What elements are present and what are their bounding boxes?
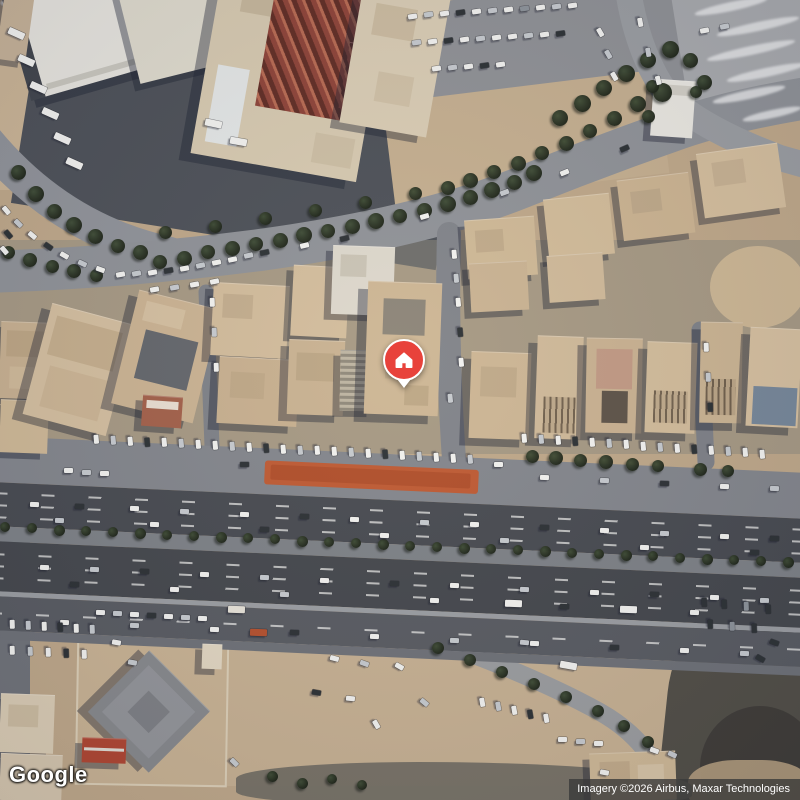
- car: [128, 437, 133, 446]
- roof-detail: [230, 372, 265, 400]
- building: [202, 644, 223, 670]
- roof-detail: [711, 159, 746, 187]
- map-canvas[interactable]: Google Imagery ©2026 Airbus, Maxar Techn…: [0, 0, 800, 800]
- car: [434, 453, 439, 462]
- building: [696, 143, 786, 219]
- car: [10, 620, 15, 629]
- car: [720, 484, 729, 489]
- building: [287, 339, 346, 416]
- tree: [559, 136, 574, 151]
- building: [210, 282, 290, 359]
- car: [180, 509, 189, 514]
- car: [212, 328, 217, 337]
- car: [451, 454, 456, 463]
- tree: [46, 260, 59, 273]
- car: [702, 598, 707, 607]
- tree: [81, 526, 91, 536]
- roof-detail: [296, 352, 335, 381]
- tree: [783, 557, 794, 568]
- truck: [505, 600, 522, 607]
- tree: [351, 538, 361, 548]
- google-logo[interactable]: Google: [9, 762, 88, 788]
- car: [240, 512, 249, 517]
- car: [260, 575, 269, 580]
- car: [766, 605, 771, 614]
- roof-detail: [480, 366, 517, 397]
- car: [90, 625, 95, 634]
- car: [346, 696, 355, 701]
- tree: [729, 555, 739, 565]
- tree: [459, 543, 470, 554]
- tree: [67, 264, 81, 278]
- car: [752, 624, 757, 633]
- roof-detail: [84, 747, 124, 751]
- car: [130, 612, 139, 617]
- car: [641, 442, 646, 451]
- car: [560, 604, 569, 609]
- tree: [209, 220, 222, 233]
- car: [708, 403, 713, 412]
- tree: [378, 539, 389, 550]
- tree: [108, 527, 118, 537]
- tree: [756, 556, 766, 566]
- car: [130, 623, 139, 628]
- car: [454, 274, 459, 283]
- roof-detail: [596, 349, 633, 390]
- car: [162, 438, 167, 447]
- roof-detail: [47, 316, 123, 372]
- tree: [393, 209, 407, 223]
- tree: [484, 182, 500, 198]
- building: [617, 172, 696, 241]
- car: [200, 572, 209, 577]
- imagery-attribution: Imagery ©2026 Airbus, Maxar Technologies: [569, 779, 800, 800]
- tree: [513, 545, 523, 555]
- car: [704, 343, 709, 352]
- car: [26, 621, 31, 630]
- truck: [620, 606, 637, 613]
- roof-detail: [752, 386, 798, 426]
- car: [744, 602, 749, 611]
- car: [710, 595, 719, 600]
- roof-detail: [311, 132, 356, 168]
- road: [448, 234, 454, 460]
- building: [0, 693, 55, 754]
- car: [730, 622, 735, 631]
- car: [450, 638, 459, 643]
- car: [383, 450, 388, 459]
- car: [42, 622, 47, 631]
- car: [558, 737, 567, 742]
- car: [640, 545, 649, 550]
- tree: [618, 720, 630, 732]
- building: [543, 193, 615, 261]
- roof-detail: [542, 396, 575, 433]
- tree: [216, 532, 227, 543]
- tree: [432, 542, 442, 552]
- tree: [621, 550, 632, 561]
- tree: [583, 124, 597, 138]
- car: [400, 451, 405, 460]
- car: [690, 610, 699, 615]
- car: [539, 435, 544, 444]
- car: [74, 624, 79, 633]
- tree: [694, 463, 707, 476]
- roof-detail: [371, 3, 418, 42]
- tree: [496, 666, 508, 678]
- roof-detail: [404, 385, 429, 406]
- tree: [153, 255, 167, 269]
- building: [82, 737, 127, 764]
- roof-detail: [374, 71, 415, 107]
- roof-detail: [601, 391, 628, 423]
- tree: [528, 678, 540, 690]
- building: [469, 261, 529, 313]
- car: [600, 528, 609, 533]
- tree: [487, 165, 501, 179]
- car: [147, 613, 156, 618]
- roof-detail: [382, 298, 425, 335]
- car: [675, 444, 680, 453]
- satellite-layer: [0, 0, 800, 800]
- tree: [28, 186, 44, 202]
- car: [650, 592, 659, 597]
- roof-detail: [205, 64, 250, 146]
- tree: [189, 531, 199, 541]
- car: [210, 298, 215, 307]
- car: [181, 615, 190, 620]
- truck: [228, 606, 245, 613]
- car: [196, 440, 201, 449]
- tree: [267, 771, 278, 782]
- car: [96, 610, 105, 615]
- car: [494, 462, 503, 467]
- car: [468, 455, 473, 464]
- car: [64, 468, 73, 473]
- tree: [88, 229, 103, 244]
- car: [600, 478, 609, 483]
- car: [30, 502, 39, 507]
- tree: [54, 525, 65, 536]
- tree: [309, 204, 322, 217]
- car: [150, 522, 159, 527]
- car: [280, 592, 289, 597]
- car: [64, 649, 69, 658]
- car: [610, 645, 619, 650]
- car: [10, 646, 15, 655]
- tree: [626, 458, 639, 471]
- roof-detail: [8, 704, 39, 727]
- car: [470, 522, 479, 527]
- car: [366, 449, 371, 458]
- car: [420, 520, 429, 525]
- tree: [463, 190, 478, 205]
- tree: [535, 146, 549, 160]
- tree: [642, 110, 655, 123]
- car: [760, 598, 769, 603]
- tree: [526, 450, 539, 463]
- car: [770, 536, 779, 541]
- car: [90, 567, 99, 572]
- tree: [690, 86, 702, 98]
- car: [82, 650, 87, 659]
- roof-detail: [142, 301, 186, 330]
- tree: [511, 156, 526, 171]
- roof-detail: [475, 229, 504, 253]
- tree: [405, 541, 415, 551]
- car: [298, 446, 303, 455]
- car: [94, 435, 99, 444]
- house-icon: [394, 350, 414, 370]
- car: [214, 363, 219, 372]
- car: [315, 446, 320, 455]
- car: [350, 517, 359, 522]
- car: [760, 450, 765, 459]
- car: [113, 611, 122, 616]
- tree: [259, 212, 272, 225]
- car: [430, 598, 439, 603]
- tree: [135, 528, 146, 539]
- car: [58, 623, 63, 632]
- car: [743, 448, 748, 457]
- building: [469, 351, 532, 440]
- car: [530, 641, 539, 646]
- car: [590, 590, 599, 595]
- tree: [297, 536, 308, 547]
- car: [70, 582, 79, 587]
- tree: [432, 642, 444, 654]
- car: [520, 587, 529, 592]
- car: [417, 452, 422, 461]
- tree: [574, 95, 591, 112]
- car: [290, 630, 299, 635]
- tree: [486, 544, 496, 554]
- tree: [648, 551, 658, 561]
- tree: [560, 691, 572, 703]
- tree: [159, 226, 172, 239]
- tree: [324, 537, 334, 547]
- tree: [409, 187, 422, 200]
- tree: [345, 219, 360, 234]
- tree: [594, 549, 604, 559]
- car: [332, 447, 337, 456]
- car: [247, 443, 252, 452]
- car: [540, 475, 549, 480]
- tree: [607, 111, 622, 126]
- tree: [722, 465, 734, 477]
- car: [722, 600, 727, 609]
- tree: [702, 554, 713, 565]
- tree: [249, 237, 263, 251]
- car: [452, 250, 457, 259]
- car: [660, 481, 669, 486]
- tree: [111, 239, 125, 253]
- car: [624, 440, 629, 449]
- car: [750, 550, 759, 555]
- truck: [250, 629, 267, 636]
- tree: [359, 196, 372, 209]
- car: [720, 534, 729, 539]
- tree: [675, 553, 685, 563]
- car: [55, 518, 64, 523]
- car: [522, 434, 527, 443]
- car: [40, 565, 49, 570]
- car: [448, 394, 453, 403]
- car: [370, 634, 379, 639]
- building: [644, 341, 697, 434]
- car: [540, 525, 549, 530]
- tree: [225, 241, 240, 256]
- building: [534, 335, 584, 440]
- car: [590, 438, 595, 447]
- tree: [47, 204, 62, 219]
- car: [380, 533, 389, 538]
- car: [170, 587, 179, 592]
- tree: [552, 110, 568, 126]
- roof-detail: [653, 390, 688, 423]
- building: [745, 327, 800, 429]
- tree: [133, 245, 148, 260]
- car: [46, 648, 51, 657]
- tree: [162, 530, 172, 540]
- car: [459, 358, 464, 367]
- tree: [683, 53, 698, 68]
- tree: [618, 65, 635, 82]
- car: [456, 298, 461, 307]
- car: [300, 514, 309, 519]
- roof-detail: [146, 400, 178, 410]
- building: [585, 338, 643, 434]
- tree: [662, 41, 679, 58]
- car: [450, 583, 459, 588]
- property-marker[interactable]: [383, 339, 425, 388]
- car: [281, 445, 286, 454]
- car: [140, 569, 149, 574]
- car: [594, 741, 603, 746]
- car: [458, 328, 463, 337]
- tree: [441, 181, 455, 195]
- car: [660, 531, 669, 536]
- car: [179, 439, 184, 448]
- tree: [540, 546, 551, 557]
- car: [708, 620, 713, 629]
- building: [546, 252, 605, 303]
- tree: [297, 778, 308, 789]
- car: [210, 627, 219, 632]
- car: [607, 439, 612, 448]
- tree: [464, 654, 476, 666]
- tree: [23, 253, 37, 267]
- tree: [574, 454, 587, 467]
- car: [692, 445, 697, 454]
- car: [680, 648, 689, 653]
- marker-tail: [397, 379, 411, 388]
- tree: [243, 533, 253, 543]
- tree: [596, 80, 612, 96]
- car: [556, 436, 561, 445]
- car: [770, 486, 779, 491]
- roof-detail: [340, 254, 367, 277]
- roof-detail: [134, 329, 198, 391]
- car: [500, 538, 509, 543]
- car: [740, 651, 749, 656]
- car: [82, 470, 91, 475]
- tree: [11, 165, 26, 180]
- roof-detail: [222, 294, 253, 320]
- tree: [368, 213, 384, 229]
- marker-circle: [383, 339, 425, 381]
- tree: [273, 233, 288, 248]
- tree: [652, 460, 664, 472]
- car: [576, 739, 585, 744]
- tree: [177, 251, 192, 266]
- tree: [549, 451, 563, 465]
- car: [573, 437, 578, 446]
- tree: [327, 774, 337, 784]
- car: [390, 581, 399, 586]
- car: [75, 504, 84, 509]
- tree: [201, 245, 215, 259]
- car: [130, 506, 139, 511]
- tree: [567, 548, 577, 558]
- tree: [599, 455, 613, 469]
- tree: [27, 523, 37, 533]
- tree: [66, 217, 82, 233]
- car: [726, 447, 731, 456]
- tree: [630, 96, 646, 112]
- tree: [270, 534, 280, 544]
- car: [709, 446, 714, 455]
- car: [145, 438, 150, 447]
- roof-detail: [39, 365, 108, 421]
- car: [520, 640, 529, 645]
- car: [28, 647, 33, 656]
- building: [141, 395, 183, 429]
- tree: [507, 175, 522, 190]
- car: [706, 373, 711, 382]
- car: [349, 448, 354, 457]
- tree: [526, 165, 542, 181]
- car: [100, 471, 109, 476]
- car: [230, 442, 235, 451]
- car: [264, 444, 269, 453]
- tree: [321, 224, 335, 238]
- tree: [296, 227, 312, 243]
- car: [260, 527, 269, 532]
- tree: [592, 705, 604, 717]
- car: [320, 578, 329, 583]
- car: [213, 441, 218, 450]
- tree: [440, 196, 456, 212]
- tree: [357, 780, 367, 790]
- roof-detail: [630, 188, 662, 213]
- car: [164, 614, 173, 619]
- car: [198, 616, 207, 621]
- road: [0, 140, 170, 254]
- car: [658, 443, 663, 452]
- tree: [463, 173, 478, 188]
- tree: [0, 522, 10, 532]
- car: [240, 462, 249, 467]
- car: [111, 436, 116, 445]
